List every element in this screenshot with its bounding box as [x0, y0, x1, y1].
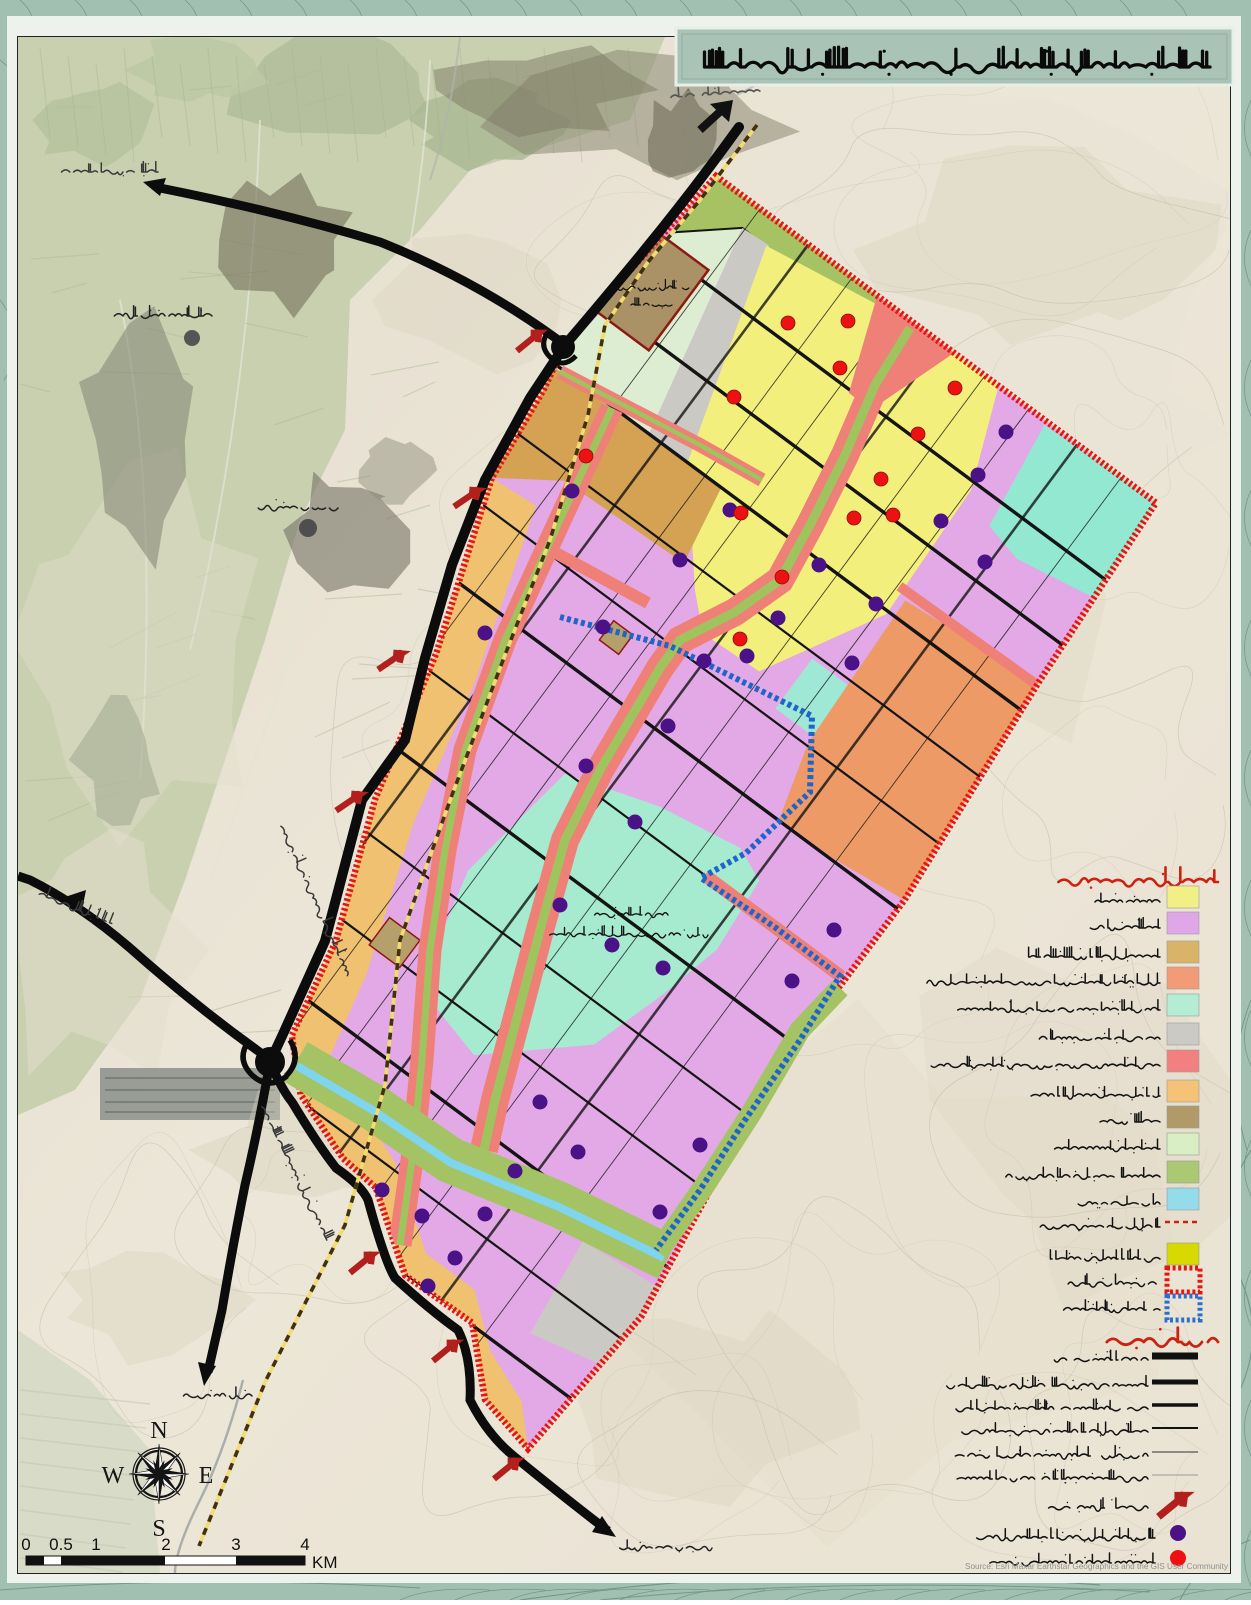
svg-text:Source: Esri Maxar Earthstar G: Source: Esri Maxar Earthstar Geographics… [965, 1562, 1229, 1571]
svg-text:KM: KM [312, 1553, 338, 1572]
svg-text:0.5: 0.5 [49, 1535, 73, 1554]
svg-text:E: E [199, 1463, 214, 1489]
svg-text:N: N [150, 1418, 167, 1444]
svg-text:3: 3 [231, 1535, 240, 1554]
svg-text:0: 0 [21, 1535, 30, 1554]
svg-text:W: W [102, 1463, 125, 1489]
svg-text:1: 1 [91, 1535, 100, 1554]
svg-text:2: 2 [161, 1535, 170, 1554]
svg-text:4: 4 [300, 1535, 309, 1554]
